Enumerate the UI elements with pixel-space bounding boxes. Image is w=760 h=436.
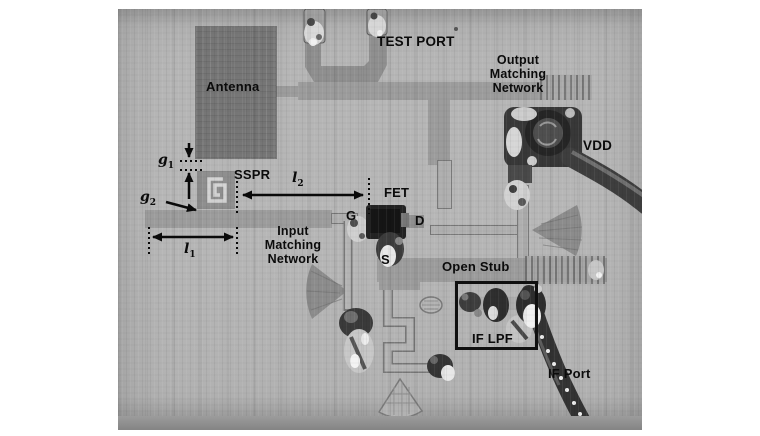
annotation-overlay [118, 9, 642, 430]
dim-l1-arrows [149, 227, 237, 254]
dim-g1-arrows [180, 143, 202, 199]
figure-canvas: Antenna TEST PORT Output Matching Networ… [0, 0, 760, 436]
dim-g2-arrow [166, 202, 196, 210]
pcb-photo: Antenna TEST PORT Output Matching Networ… [118, 9, 642, 430]
dim-l2-arrows [237, 178, 369, 214]
